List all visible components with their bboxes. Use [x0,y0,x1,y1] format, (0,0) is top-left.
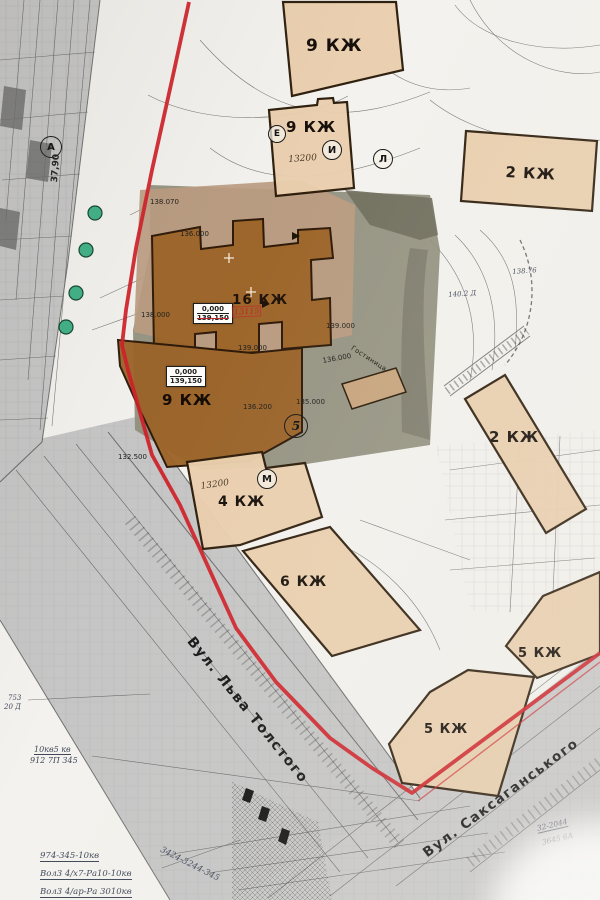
building-label-6kzh: 6 КЖ [280,574,327,590]
building-label-5kzh-lower: 5 КЖ [424,722,468,737]
spot-elevation: 139.000 [238,344,267,352]
section-mark-l: Л [373,149,393,169]
handwritten-note-10: 20 Д [4,703,21,711]
handwritten-note-5: 10кв5 кв [34,745,71,755]
handwritten-mark-5: 5 [284,414,308,438]
survey-station-mark-a: А [40,136,62,158]
handwritten-note-2: Вол3 4/х7-Ра10-10кв [40,869,132,880]
red-handwritten-note: 13115 [232,305,262,318]
handwritten-note-9: 753 [8,694,21,702]
spot-elevation: 135.000 [296,398,325,406]
building-label-5kzh-upper: 5 КЖ [518,646,562,661]
handwritten-note-1: 974-345-10кв [40,851,99,862]
handwritten-note-6: 912 7П 345 [30,756,78,765]
section-mark-i: И [322,140,342,160]
spot-elevation: 138.76 [512,266,537,276]
spot-elevation: 136.000 [180,230,209,238]
elevation-box-16kzh: 0,000 139,150 [193,303,233,324]
building-label-2kzh-topright: 2 КЖ [505,163,556,184]
elevation-box-9kzh: 0,000 139,150 [166,366,206,387]
site-plan-photo: 9 КЖ 9 КЖ 2 КЖ 16 КЖ 9 КЖ 2 КЖ 4 КЖ 6 КЖ… [0,0,600,900]
dimension-13200: 13200 [288,153,317,165]
building-16kzh-footprint [152,219,333,355]
tree-icon [59,320,73,334]
elevation-absolute-value: 139,150 [197,314,229,322]
spot-elevation: 132.500 [118,453,147,461]
section-mark-m: М [257,469,277,489]
elevation-absolute-value: 139,150 [170,377,202,385]
tree-icon [79,243,93,257]
spot-elevation: 138.000 [141,311,170,319]
spot-elevation: 136.200 [243,403,272,411]
elevation-zero-mark: 0,000 [170,368,202,377]
building-label-9kzh-mid: 9 КЖ [286,118,336,136]
building-label-4kzh: 4 КЖ [218,494,265,510]
spot-elevation: 138.070 [150,198,179,206]
building-label-9kzh-top: 9 КЖ [306,36,362,56]
elevation-zero-mark: 0,000 [197,305,229,314]
building-label-9kzh-brown: 9 КЖ [162,391,212,409]
building-label-2kzh-right: 2 КЖ [489,428,539,446]
tree-icon [69,286,83,300]
handwritten-note-3: Вол3 4/ар-Ра 3010кв [40,887,132,898]
section-mark-e: Е [268,125,286,143]
spot-elevation: 139.000 [326,322,355,330]
tree-icon [88,206,102,220]
